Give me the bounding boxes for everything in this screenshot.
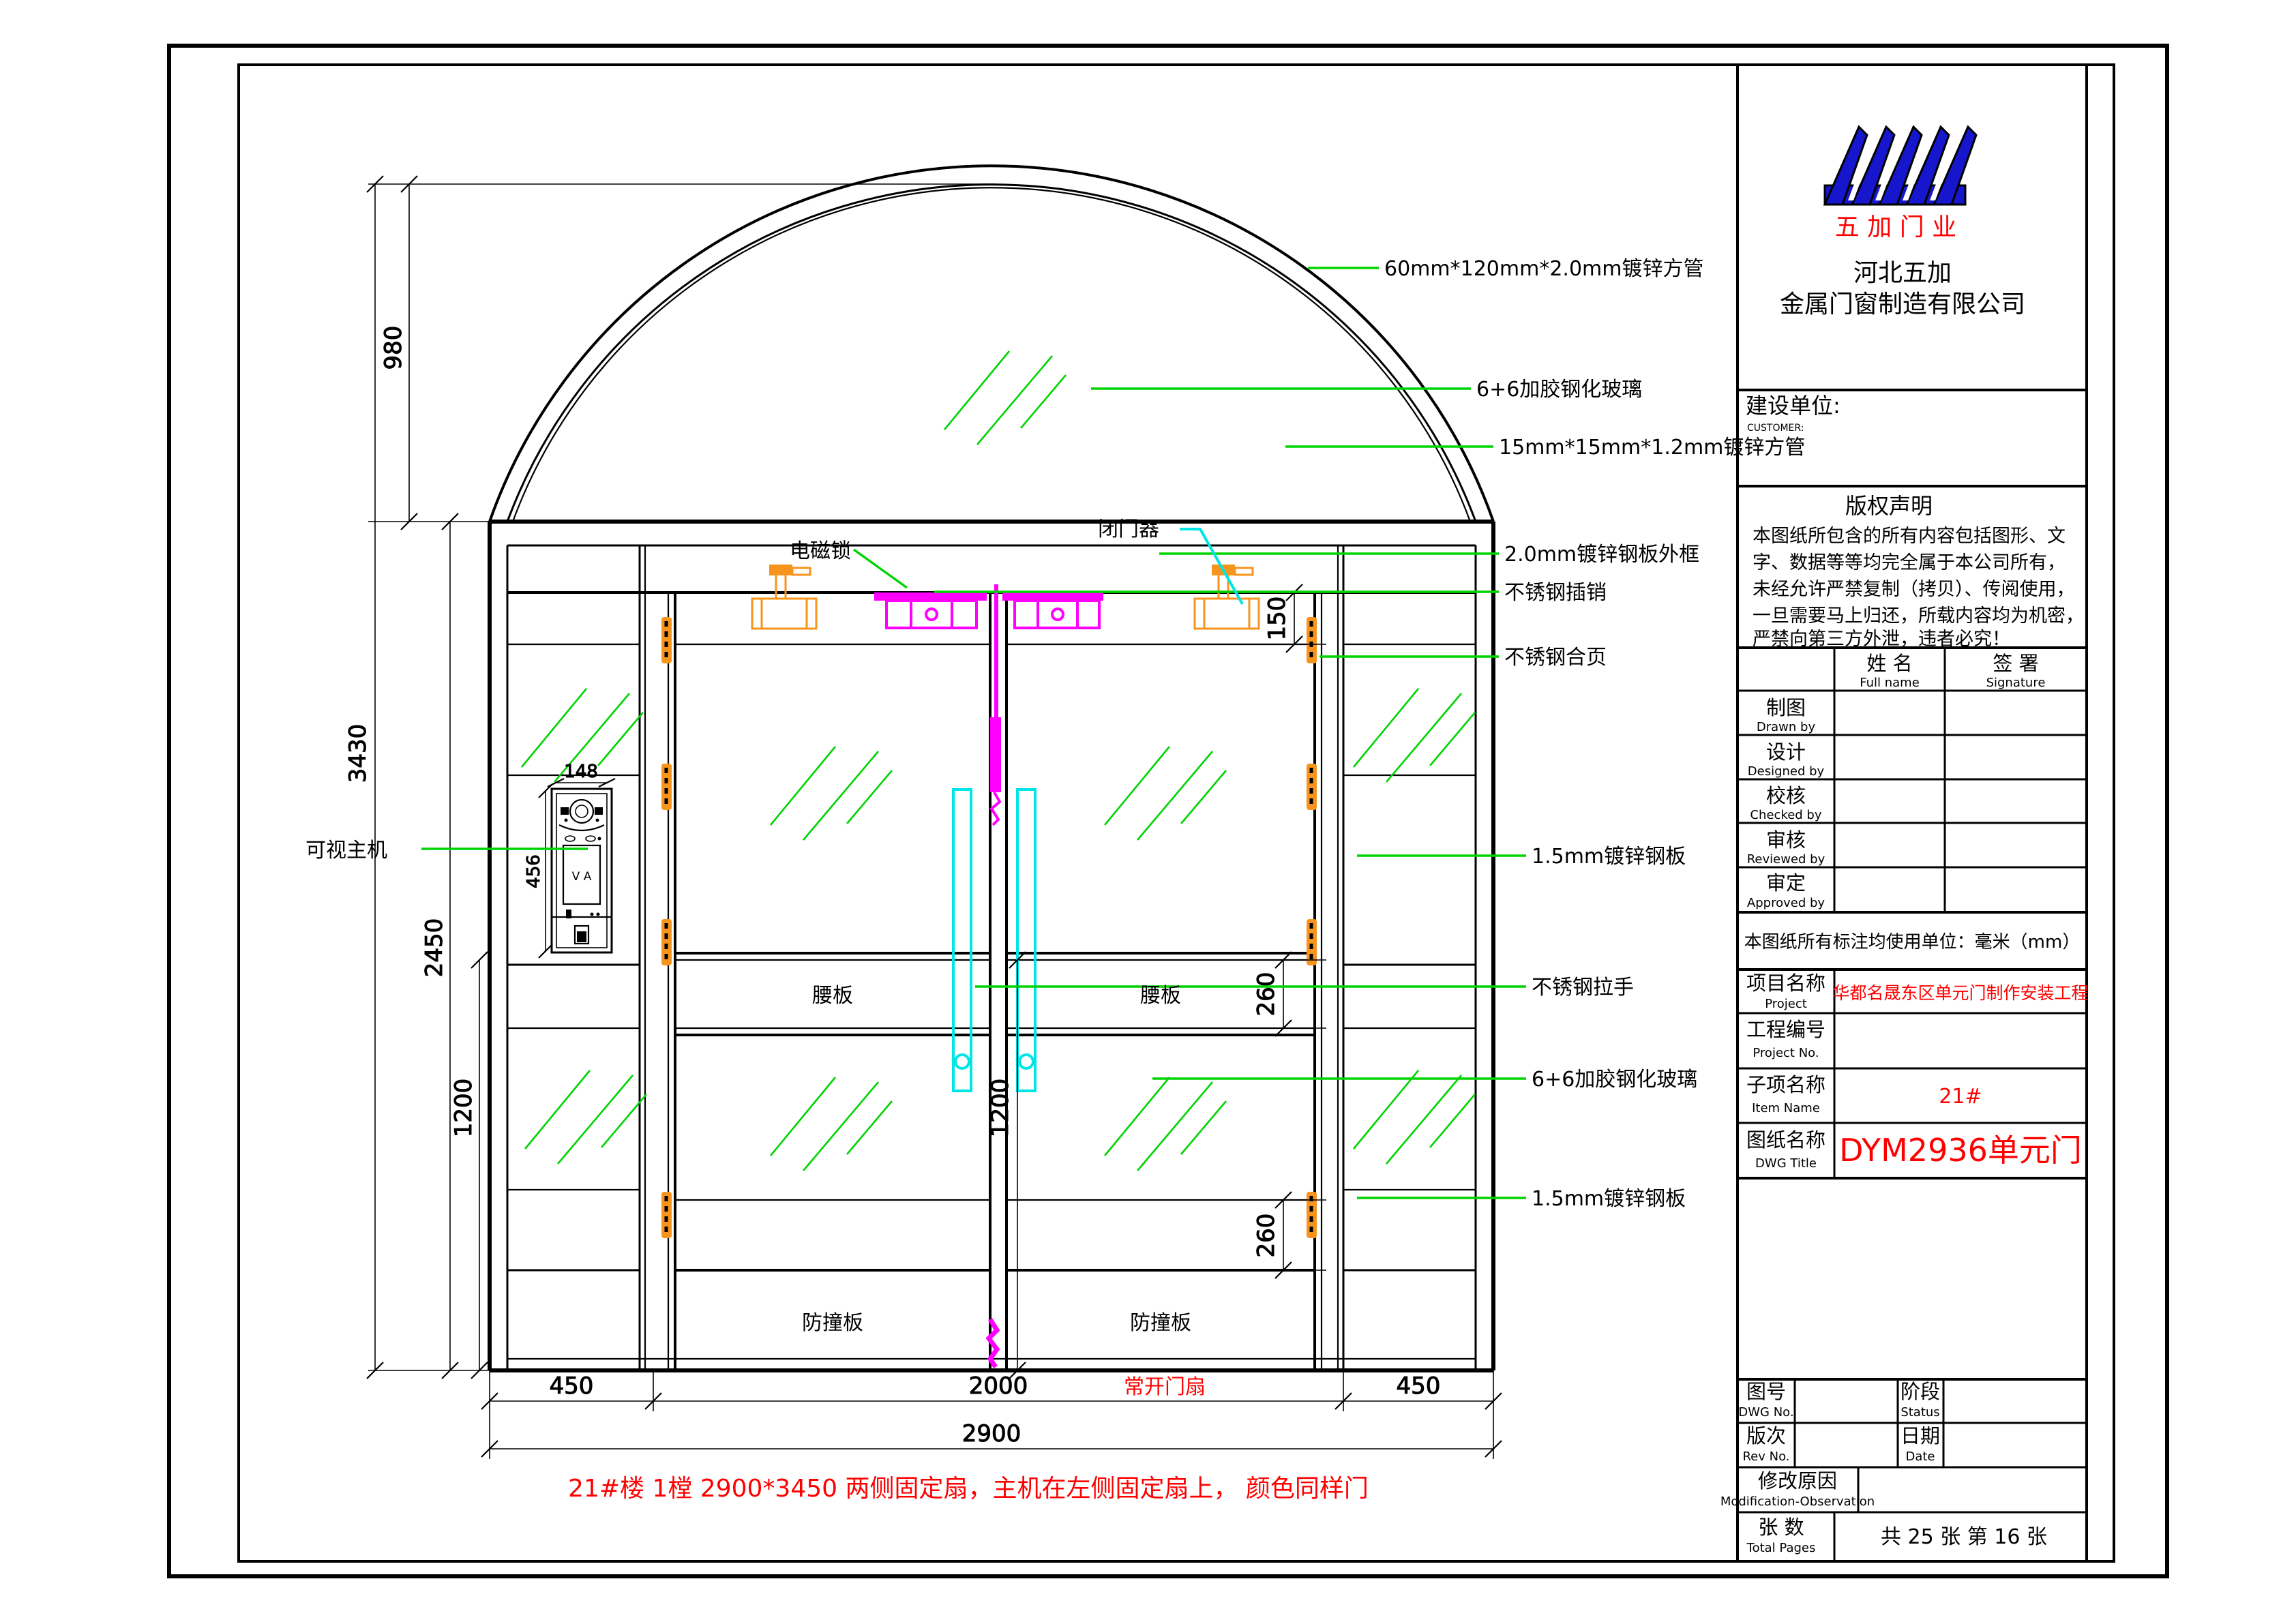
copyright-line-1: 本图纸所包含的所有内容包括图形、文 (1753, 526, 2066, 547)
maglock-icon (1002, 592, 1103, 628)
dim-left-fixed: 450 (550, 1372, 594, 1400)
col-fullname-sub: Full name (1860, 676, 1920, 690)
label-maglock: 电磁锁 (790, 539, 851, 563)
project-label: 项目名称 (1746, 972, 1825, 995)
hinge-icon (661, 1192, 672, 1238)
label-bump-right: 防撞板 (1130, 1311, 1191, 1335)
dim-door-opening: 2000 (969, 1372, 1028, 1400)
label-intercom: 可视主机 (305, 839, 387, 862)
title-block: 五 加 门 业 河北五加 金属门窗制造有限公司 建设单位: CUSTOMER: … (1720, 65, 2089, 1561)
copyright-line-5: 严禁向第三方外泄，违者必究！ (1753, 629, 2010, 650)
callout-texts: 60mm*120mm*2.0mm镀锌方管 6+6加胶钢化玻璃 15mm*15mm… (305, 257, 1805, 1399)
customer-label: 建设单位: (1746, 393, 1840, 419)
svg-text:Reviewed by: Reviewed by (1747, 852, 1825, 867)
dwg-title-label: 图纸名称 (1746, 1128, 1825, 1152)
project-no-label: 工程编号 (1746, 1018, 1825, 1041)
project-sub: Project (1765, 997, 1807, 1011)
callout-arch-tube: 60mm*120mm*2.0mm镀锌方管 (1384, 257, 1704, 281)
pages-sub: Total Pages (1746, 1541, 1816, 1555)
callout-leaders (421, 268, 1526, 1198)
dwg-title-sub: DWG Title (1755, 1156, 1817, 1171)
company-name-line1: 河北五加 (1853, 259, 1952, 287)
svg-text:Drawn by: Drawn by (1757, 720, 1816, 734)
item-value: 21# (1939, 1085, 1982, 1109)
dim-kick-band: 260 (1253, 1214, 1280, 1258)
dimensions: 3430 980 2450 1200 1200 150 (344, 176, 1502, 1459)
hinge-icon (1307, 1192, 1317, 1238)
svg-text:Checked by: Checked by (1750, 808, 1821, 822)
dim-overall-width: 2900 (962, 1420, 1022, 1447)
dim-glass-center: 1200 (987, 1079, 1014, 1138)
dim-total-height: 3430 (344, 724, 372, 783)
company-logo (1825, 127, 1976, 205)
sign-row-designed: 设计 Designed by (1748, 740, 1825, 779)
sign-row-drawn: 制图 Drawn by (1757, 696, 1816, 734)
customer-sub: CUSTOMER: (1747, 423, 1804, 434)
callout-door-glass: 6+6加胶钢化玻璃 (1532, 1068, 1697, 1092)
copyright-line-4: 一旦需要马上归还，所载内容均为机密， (1753, 605, 2084, 627)
intercom-screen-text: V A (572, 870, 592, 884)
label-door-closer: 闭门器 (1098, 517, 1159, 541)
dwg-no-sub: DWG No. (1738, 1405, 1793, 1420)
dim-waist-band: 260 (1253, 972, 1280, 1017)
hinge-icon (1307, 919, 1317, 965)
pages-label: 张 数 (1758, 1516, 1804, 1539)
dim-glass-left: 1200 (450, 1079, 477, 1138)
intercom-unit: V A (552, 789, 612, 952)
rev-sub: Rev No. (1742, 1450, 1789, 1464)
svg-text:Approved by: Approved by (1747, 896, 1825, 910)
rev-label: 版次 (1746, 1424, 1786, 1447)
hinge-icon (661, 617, 672, 663)
sign-row-checked: 校核 Checked by (1750, 784, 1821, 822)
label-open-leaf: 常开门扇 (1124, 1375, 1206, 1399)
label-waist-left: 腰板 (812, 984, 853, 1008)
left-leaf-rails (675, 644, 990, 1270)
project-value: 华都名晟东区单元门制作安装工程 (1832, 983, 2088, 1003)
pull-handles (953, 790, 1035, 1091)
copyright-line-2: 字、数据等等均完全属于本公司所有， (1753, 552, 2066, 573)
pages-value: 共 25 张 第 16 张 (1881, 1525, 2047, 1549)
callout-steel-plate-2: 1.5mm镀锌钢板 (1532, 1187, 1686, 1211)
dim-intercom-width: 148 (564, 762, 598, 782)
door-elevation: V A 3430 980 2450 (305, 166, 1805, 1503)
company-name-line2: 金属门窗制造有限公司 (1780, 290, 2025, 318)
copyright-title: 版权声明 (1845, 493, 1933, 519)
project-no-sub: Project No. (1753, 1046, 1819, 1060)
dim-top-rail: 150 (1264, 597, 1291, 641)
dim-intercom-height: 456 (524, 854, 544, 888)
dwg-title-value: DYM2936单元门 (1839, 1132, 2082, 1169)
col-fullname: 姓 名 (1866, 652, 1912, 675)
unit-note: 本图纸所有标注均使用单位：毫米（mm） (1744, 932, 2081, 952)
label-waist-right: 腰板 (1140, 984, 1181, 1008)
col-signature: 签 署 (1993, 652, 2038, 675)
label-bump-left: 防撞板 (802, 1311, 863, 1335)
svg-text:审定: 审定 (1766, 871, 1806, 895)
callout-handle: 不锈钢拉手 (1532, 976, 1634, 1000)
mod-label: 修改原因 (1758, 1469, 1837, 1492)
callout-arch-glass: 6+6加胶钢化玻璃 (1476, 378, 1642, 402)
svg-text:校核: 校核 (1766, 784, 1806, 807)
svg-text:制图: 制图 (1766, 696, 1806, 719)
hinge-icon (661, 764, 672, 810)
item-label: 子项名称 (1746, 1073, 1825, 1096)
copyright-line-3: 未经允许严禁复制（拷贝）、传阅使用， (1753, 579, 2075, 600)
sign-row-reviewed: 审核 Reviewed by (1747, 828, 1825, 867)
svg-text:审核: 审核 (1766, 828, 1806, 852)
drawing-note: 21#楼 1樘 2900*3450 两侧固定扇，主机在左侧固定扇上， 颜色同样门 (568, 1475, 1369, 1503)
maglock-icon (874, 592, 987, 628)
dim-right-fixed: 450 (1397, 1372, 1441, 1400)
col-signature-sub: Signature (1986, 676, 2046, 690)
right-leaf-rails (1007, 644, 1315, 1270)
svg-text:设计: 设计 (1766, 740, 1806, 764)
logo-brand-text: 五 加 门 业 (1835, 213, 1956, 241)
dim-door-height: 2450 (421, 918, 448, 978)
hinge-icon (1307, 764, 1317, 810)
dwg-no-label: 图号 (1746, 1380, 1786, 1403)
date-label: 日期 (1900, 1424, 1940, 1447)
callout-hinge: 不锈钢合页 (1504, 646, 1607, 670)
callout-steel-plate-1: 1.5mm镀锌钢板 (1532, 845, 1686, 869)
svg-text:Designed by: Designed by (1748, 764, 1825, 779)
drawing-sheet: V A 3430 980 2450 (0, 0, 2296, 1622)
arch-frame (490, 166, 1493, 522)
callout-arch-small-tube: 15mm*15mm*1.2mm镀锌方管 (1499, 436, 1805, 460)
callout-flush-bolt: 不锈钢插销 (1504, 581, 1607, 605)
status-label: 阶段 (1900, 1380, 1940, 1403)
hinge-icon (1307, 617, 1317, 663)
door-closer-icon (752, 565, 816, 629)
status-sub: Status (1900, 1405, 1939, 1420)
sign-row-approved: 审定 Approved by (1747, 871, 1825, 910)
hinge-icon (661, 919, 672, 965)
date-sub: Date (1905, 1450, 1935, 1464)
item-sub: Item Name (1752, 1101, 1820, 1115)
callout-outer-frame: 2.0mm镀锌钢板外框 (1504, 543, 1699, 567)
mod-sub: Modification-Observation (1720, 1495, 1875, 1509)
dim-arch-height: 980 (380, 326, 407, 370)
